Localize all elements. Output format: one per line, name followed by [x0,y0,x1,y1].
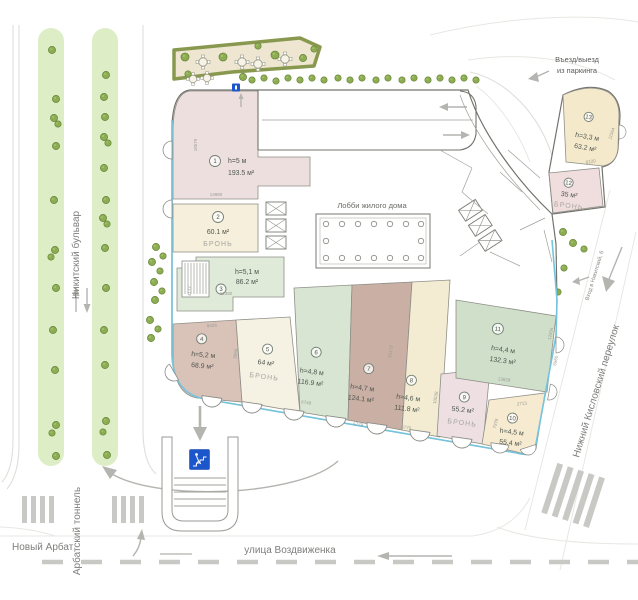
site-plan: 1 h=5 м 193.5 м² 2 60.1 м² БРОНЬ h=5,1 м… [0,0,638,600]
lobby-label: Лобби жилого дома [337,201,407,210]
parking-label-line2: из паркинга [557,66,598,75]
tunnel-stripes-left [22,496,54,523]
street-label-kislovsky: Нижний Кисловский переулок [571,323,622,459]
entrance-label: Вход в Никитский, 6 [584,250,606,301]
tunnel-arrow [133,529,145,556]
road-edge [2,25,13,482]
road-edge [0,527,55,536]
tree-row-top [249,75,479,84]
crosswalk [541,463,605,528]
underpass-steps [174,478,226,506]
parking-label-line1: Въезд/выезд [555,55,600,64]
underpass-entrance [162,406,238,531]
pedestrian-underpass-sign-icon [190,450,210,470]
svg-text:h=5 м: h=5 м [228,158,247,165]
uturn-arrow [102,461,338,492]
kislovsky-arrow [602,247,622,292]
road-edge [430,17,638,35]
parking-arrow [528,71,549,82]
underpass-arrow [193,406,207,441]
svg-text:6779: 6779 [353,421,364,427]
boulevard-strip-left [38,28,64,466]
svg-text:h=5,1 м: h=5,1 м [235,269,259,276]
courtyard [316,214,430,268]
street-label-novy-arbat: Новый Арбат [12,541,74,553]
svg-text:86.2 м²: 86.2 м² [236,279,259,286]
street-label-nikitsky: Никитский бульвар [70,210,82,299]
street-label-vozdvizhenka: улица Воздвиженка [244,545,336,556]
vozdvizhenka-arrow [377,552,452,560]
svg-text:193.5 м²: 193.5 м² [228,170,255,177]
elevator-core [266,202,286,249]
svg-text:13980: 13980 [210,192,223,197]
svg-text:8426: 8426 [207,323,218,329]
trees-left-cluster [146,243,166,341]
tunnel-stripes-right [112,496,144,523]
unit-4-shape[interactable] [173,320,242,402]
svg-text:6980: 6980 [552,355,559,366]
svg-text:60.1 м²: 60.1 м² [207,229,230,236]
svg-text:18579: 18579 [193,138,198,151]
svg-text:4177: 4177 [187,285,192,296]
svg-text:БРОНЬ: БРОНЬ [203,241,233,248]
svg-text:12380: 12380 [220,291,233,296]
street-label-arbat-tunnel: Арбатский тоннель [71,487,83,575]
